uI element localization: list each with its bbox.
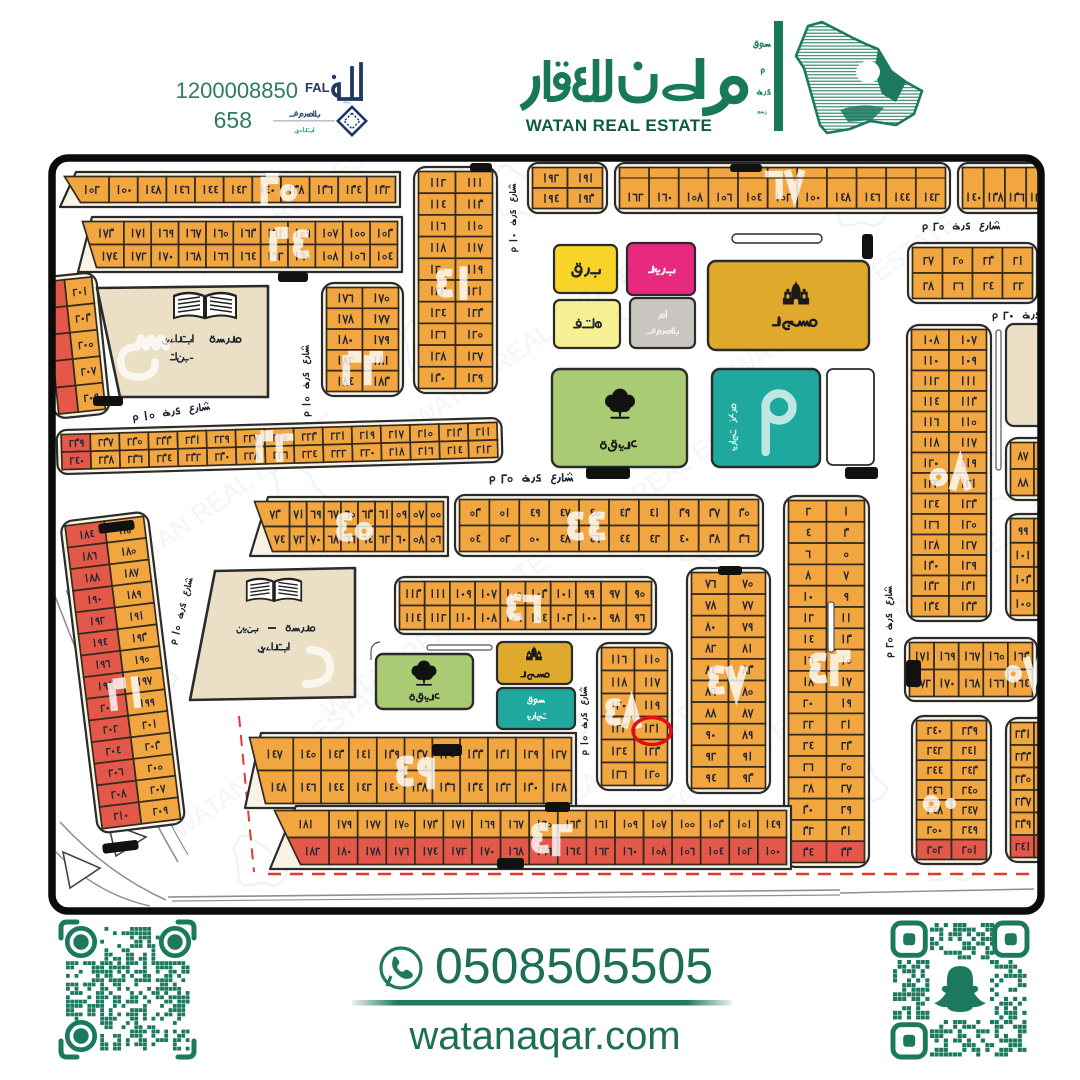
- svg-text:658: 658: [214, 107, 252, 133]
- svg-text:0508505505: 0508505505: [435, 938, 713, 994]
- svg-text:watanaqar.com: watanaqar.com: [408, 1014, 680, 1058]
- svg-text:FAL: FAL: [305, 80, 330, 95]
- svg-text:WATAN REAL ESTATE: WATAN REAL ESTATE: [526, 116, 713, 135]
- svg-text:1200008850: 1200008850: [176, 78, 298, 103]
